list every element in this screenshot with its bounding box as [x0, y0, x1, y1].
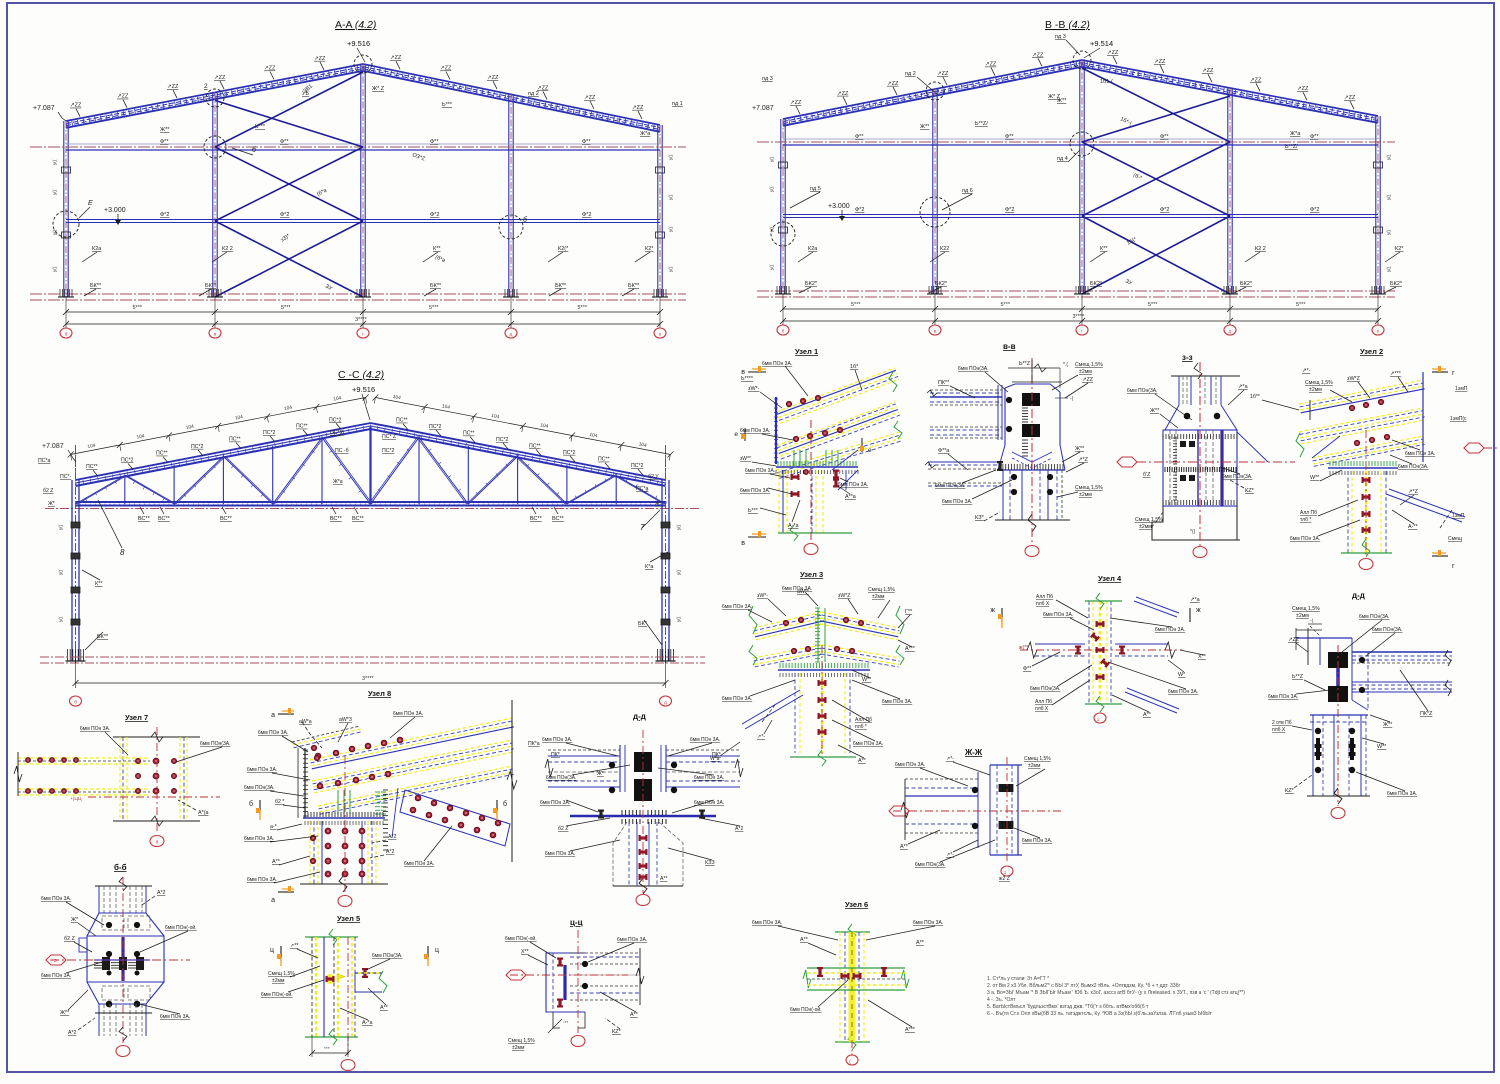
svg-text:↗***: ↗***	[1390, 371, 1402, 377]
svg-text:1б1-(: 1б1-(	[1100, 79, 1113, 85]
svg-text:тлб *: тлб *	[1300, 517, 1311, 523]
svg-text:+7.087: +7.087	[752, 105, 774, 112]
svg-text:ПС -б: ПС -б	[335, 448, 349, 454]
svg-text:д: д	[510, 332, 513, 337]
svg-text:4 -. Зъ. *Олт: 4 -. Зъ. *Олт	[987, 997, 1016, 1003]
svg-text:А*(а: А*(а	[198, 810, 209, 816]
svg-text:Ф*2: Ф*2	[855, 207, 864, 213]
svg-text:пд 2: пд 2	[528, 91, 539, 97]
svg-text:Ж*: Ж*	[597, 771, 604, 777]
svg-text:А-*а: А-*а	[362, 1020, 373, 1026]
svg-text:6мм ПОн(3А.: 6мм ПОн(3А.	[244, 785, 274, 791]
svg-text:А**: А**	[630, 1012, 639, 1018]
svg-text:3****: 3****	[1073, 314, 1085, 320]
svg-text:6мм ПОн 3А.: 6мм ПОн 3А.	[1168, 689, 1198, 695]
svg-text:ВС**: ВС**	[158, 516, 171, 522]
svg-text:Узел 1: Узел 1	[795, 347, 818, 356]
svg-text:з-з: з-з	[1182, 353, 1193, 362]
svg-text:Смещ: Смещ	[1448, 536, 1462, 542]
svg-text:А-**: А-**	[1408, 524, 1418, 530]
svg-text:2. от Вм 2 х3 Убл. Вбльм2'* с: 2. от Вм 2 х3 Убл. Вбльм2'* с БЫ 3* лтУ,…	[987, 983, 1180, 989]
svg-text:+7.087: +7.087	[33, 105, 55, 112]
svg-text:Узел 5: Узел 5	[337, 914, 360, 923]
svg-text:±2мм: ±2мм	[1079, 492, 1092, 498]
svg-text:БК2*: БК2*	[1090, 281, 1103, 287]
svg-text:В -В (4.2): В -В (4.2)	[1045, 19, 1090, 31]
svg-text:у((: у((	[52, 159, 57, 165]
svg-text:6мм ПОн 3А.: 6мм ПОн 3А.	[545, 851, 575, 857]
svg-text:г: г	[1452, 370, 1455, 377]
svg-text:ж2 Z: ж2 Z	[999, 876, 1010, 882]
svg-text:д: д	[664, 700, 667, 705]
svg-text:КZ*: КZ*	[1245, 488, 1255, 494]
svg-text:5***: 5***	[429, 305, 439, 311]
svg-text:*.(: *.(	[1063, 362, 1068, 368]
svg-text:у((: у((	[769, 156, 774, 162]
svg-text:↗*-: ↗*-	[946, 756, 954, 762]
svg-text:А**: А**	[916, 940, 925, 946]
svg-text:↗ZZ: ↗ZZ	[584, 95, 596, 101]
svg-text:1б**: 1б**	[1250, 394, 1260, 400]
svg-text:6мм ПОн(-ой.: 6мм ПОн(-ой.	[165, 924, 197, 931]
svg-text:ПС**: ПС**	[229, 437, 241, 443]
svg-text:ВС**: ВС**	[220, 516, 233, 522]
svg-text:6мм ПОн 3А.: 6мм ПОн 3А.	[160, 1014, 190, 1020]
svg-text:а: а	[271, 897, 275, 904]
svg-text:↗*-: ↗*-	[1302, 368, 1311, 374]
svg-text:Ф**: Ф**	[430, 139, 439, 145]
svg-text:6мм ПОн 3А.: 6мм ПОн 3А.	[694, 775, 724, 781]
svg-text:±2мм: ±2мм	[872, 594, 885, 600]
svg-text:Ж**: Ж**	[1383, 722, 1393, 728]
svg-text:Алл Пб: Алл Пб	[1300, 510, 1317, 516]
svg-text:А**: А**	[660, 876, 668, 882]
svg-text:ПС**: ПС**	[156, 451, 168, 457]
svg-text:6мм ПОн 3А.: 6мм ПОн 3А.	[1155, 627, 1185, 633]
svg-text:Ф*2: Ф*2	[430, 212, 439, 218]
svg-text:у((: у((	[769, 226, 774, 232]
svg-text:±2мм: ±2мм	[1139, 524, 1152, 530]
svg-text:±2мм: ±2мм	[272, 978, 285, 984]
svg-text:Г**: Г**	[905, 609, 913, 615]
svg-text:2 отв Пб: 2 отв Пб	[1272, 720, 1292, 726]
svg-text:Ж*а: Ж*а	[333, 479, 343, 485]
svg-text:А*2: А*2	[388, 834, 396, 840]
svg-text:↗ZZ: ↗ZZ	[1250, 77, 1262, 83]
svg-text:1б*: 1б*	[850, 364, 859, 370]
svg-text:6мм ПОн(3А.: 6мм ПОн(3А.	[200, 741, 230, 747]
svg-text:Ф**: Ф**	[280, 139, 289, 145]
svg-text:*((: *((	[1190, 529, 1196, 535]
svg-text:зW**: зW**	[740, 456, 751, 462]
svg-text:6мм ПОн 3А.: 6мм ПОн 3А.	[740, 428, 770, 434]
svg-text:+3.000: +3.000	[828, 203, 850, 210]
svg-text:6мм ПОн 3А.: 6мм ПОн 3А.	[542, 737, 572, 743]
svg-text:6мм ПОн 3А.: 6мм ПОн 3А.	[247, 767, 277, 773]
svg-text:3****: 3****	[362, 676, 374, 682]
svg-text:пд 3: пд 3	[1055, 34, 1066, 40]
svg-text:А*2: А*2	[68, 1030, 76, 1036]
svg-text:6мм ПОн 3А.: 6мм ПОн 3А.	[853, 741, 883, 747]
svg-text:6мм ПОн 3А.: 6мм ПОн 3А.	[942, 499, 972, 505]
svg-text:К22: К22	[940, 246, 949, 252]
svg-text:у((: у((	[769, 264, 774, 270]
svg-text:б2 Z: б2 Z	[558, 826, 568, 832]
svg-text:К**: К**	[433, 246, 441, 252]
svg-text:ж: ж	[1196, 607, 1201, 614]
svg-text:Ж**: Ж**	[160, 127, 170, 133]
svg-text:Ж**: Ж**	[1075, 446, 1085, 452]
svg-text:5***: 5***	[851, 302, 861, 308]
svg-text:аW**: аW**	[797, 589, 809, 595]
svg-text:ПС* Z: ПС* Z	[382, 434, 396, 440]
svg-text:ц: ц	[435, 947, 439, 954]
svg-text:6мм ПОн 3А.: 6мм ПОн 3А.	[1387, 791, 1417, 797]
svg-text:Ф**: Ф**	[855, 134, 864, 140]
svg-text:ПС*2: ПС*2	[631, 463, 643, 469]
svg-text:W*: W*	[1178, 672, 1186, 678]
svg-text:у((: у((	[676, 616, 681, 622]
svg-text:ПС*-: ПС*-	[60, 474, 71, 480]
svg-text:пд 4: пд 4	[1057, 156, 1068, 162]
svg-text:Смещ 1,5%: Смещ 1,5%	[268, 971, 295, 977]
svg-text:↗ZZ: ↗ZZ	[314, 56, 326, 62]
svg-text:З: З	[54, 958, 57, 963]
svg-text:ВС**: ВС**	[530, 516, 543, 522]
svg-text:W**: W**	[1377, 744, 1387, 750]
svg-text:БК**: БК**	[90, 283, 102, 289]
svg-text:Узел 4: Узел 4	[1098, 574, 1122, 583]
svg-text:Узел 7: Узел 7	[125, 713, 148, 722]
svg-text:↗ZZ: ↗ZZ	[1202, 68, 1214, 74]
svg-text:6мм ПОн(3А.: 6мм ПОн(3А.	[1222, 474, 1252, 480]
svg-text:б2 У: б2 У	[648, 474, 659, 480]
svg-text:б: б	[782, 329, 785, 334]
svg-text:плб Х: плб Х	[1035, 706, 1049, 712]
svg-text:у((: у((	[58, 616, 63, 622]
svg-text:Ь**Z: Ь**Z	[1292, 674, 1304, 680]
svg-text:б: б	[503, 800, 507, 808]
svg-text:6мм ПОн 3А.: 6мм ПОн 3А.	[1290, 536, 1320, 542]
svg-text:6мм ПОн 3А.: 6мм ПОн 3А.	[244, 836, 274, 842]
svg-text:б: б	[65, 332, 68, 337]
svg-text:5***: 5***	[1001, 302, 1011, 308]
svg-text:плб Х: плб Х	[1036, 601, 1050, 607]
svg-text:А**: А**	[1143, 712, 1152, 718]
svg-text:Ж*а: Ж*а	[640, 131, 651, 137]
svg-text:аW*а: аW*а	[299, 719, 312, 725]
svg-text:1эмП: 1эмП	[1455, 386, 1468, 392]
svg-text:ВС**: ВС**	[552, 516, 565, 522]
svg-text:Ь***: Ь***	[748, 508, 759, 514]
svg-text:↗*а: ↗*а	[1238, 384, 1248, 390]
svg-text:Смещ 1,5%: Смещ 1,5%	[508, 1038, 535, 1044]
svg-text:зW*-: зW*-	[748, 386, 760, 392]
svg-text:Смещ 1,5%: Смещ 1,5%	[1075, 485, 1103, 491]
svg-text:зW*Z: зW*Z	[838, 593, 850, 599]
svg-text:Ж* Z: Ж* Z	[372, 86, 385, 92]
svg-text:Ф**: Ф**	[1310, 134, 1319, 140]
svg-text:+3.000: +3.000	[104, 207, 126, 214]
svg-text:6мм ПОн 3А.: 6мм ПОн 3А.	[1022, 838, 1052, 844]
svg-text:6мм ПОн(-ой.: 6мм ПОн(-ой.	[261, 991, 293, 998]
svg-text:К2а: К2а	[92, 246, 102, 252]
svg-text:Ф*2: Ф*2	[1005, 207, 1014, 213]
svg-text:±2мм: ±2мм	[1028, 763, 1041, 769]
svg-text:пд 5: пд 5	[810, 186, 821, 192]
svg-text:6мм ПОн 3А.: 6мм ПОн 3А.	[540, 800, 570, 806]
svg-text:↗ZZ: ↗ZZ	[264, 66, 276, 72]
svg-text:5***: 5***	[281, 305, 291, 311]
svg-text:КЗ*: КЗ*	[975, 515, 985, 521]
svg-text:↗ZZ: ↗ZZ	[440, 66, 452, 72]
svg-text:Ь**Z/: Ь**Z/	[975, 121, 988, 127]
svg-text:КЗЗ: КЗЗ	[705, 860, 715, 866]
svg-text:Ф**: Ф**	[160, 139, 169, 145]
svg-text:8: 8	[120, 548, 125, 557]
svg-text:↗ZZ: ↗ZZ	[790, 100, 802, 106]
svg-text:5***: 5***	[133, 305, 143, 311]
svg-text:ПС*2: ПС*2	[496, 437, 508, 443]
svg-text:↗ZZ: ↗ZZ	[1082, 377, 1094, 383]
svg-text:5***: 5***	[578, 305, 588, 311]
svg-text:↗ZZ: ↗ZZ	[1297, 86, 1309, 92]
svg-text:К2 2: К2 2	[1255, 246, 1266, 252]
svg-text:К*а: К*а	[645, 564, 654, 570]
svg-text:Ь**Z/: Ь**Z/	[1285, 144, 1298, 150]
svg-text:ПС*а: ПС*а	[38, 458, 50, 464]
svg-text:6мм ПОн 3А.: 6мм ПОн 3А.	[895, 762, 925, 768]
svg-text:Ж*а: Ж*а	[1290, 131, 1301, 137]
svg-text:ц: ц	[270, 947, 274, 954]
svg-text:БК*: БК*	[638, 621, 648, 627]
svg-text:К2*: К2*	[645, 246, 654, 252]
svg-text:Е: Е	[88, 200, 93, 207]
svg-text:ПК*: ПК*	[551, 752, 560, 758]
svg-text:↗ZZ: ↗ZZ	[1107, 50, 1119, 56]
svg-text:зW*-: зW*-	[757, 593, 768, 599]
svg-text:***: ***	[324, 1046, 330, 1052]
svg-text:у((: у((	[52, 266, 57, 272]
svg-text:в: в	[741, 540, 745, 547]
svg-text:К2(*: К2(*	[558, 246, 569, 252]
svg-text:Смещ 1,5%: Смещ 1,5%	[1292, 606, 1320, 612]
svg-text:б'Z: б'Z	[1143, 472, 1151, 478]
svg-text:Ф*2: Ф*2	[582, 212, 591, 218]
svg-text:±2мм: ±2мм	[1309, 387, 1322, 393]
svg-text:д: д	[1229, 329, 1232, 334]
svg-text:ц-ц: ц-ц	[570, 918, 583, 927]
svg-text:6мм ПОн(-ой.: 6мм ПОн(-ой.	[790, 1006, 822, 1013]
svg-text:ПС**: ПС**	[463, 431, 475, 437]
svg-text:у((: у((	[668, 194, 673, 200]
svg-text:6мм ПОн 3А.: 6мм ПОн 3А.	[393, 711, 423, 717]
svg-text:6мм ПОн 3А.: 6мм ПОн 3А.	[1268, 694, 1298, 700]
svg-text:Ф**а: Ф**а	[938, 448, 949, 454]
svg-text:б: б	[249, 800, 253, 808]
svg-text:Узел 8: Узел 8	[368, 689, 391, 698]
svg-text:6мм ПОн 3А.: 6мм ПОн 3А.	[745, 468, 775, 474]
svg-text:Ь***: Ь***	[255, 124, 266, 130]
svg-text:А**: А**	[380, 1005, 389, 1011]
svg-text:Алл Пб: Алл Пб	[1036, 594, 1053, 600]
svg-text:Ь**Z: Ь**Z	[1019, 361, 1031, 367]
svg-text:Ф*2: Ф*2	[280, 212, 289, 218]
svg-text:↗*а: ↗*а	[1190, 597, 1200, 603]
svg-text:а: а	[271, 712, 275, 719]
svg-text:д-д: д-д	[1352, 591, 1365, 600]
svg-text:↗**: ↗**	[290, 943, 298, 949]
svg-text:6мм ПОн(3А.: 6мм ПОн(3А.	[1127, 388, 1157, 394]
svg-text:пд 2: пд 2	[905, 71, 916, 77]
svg-text:1. Ст*ль у стали: 3т А=ГТ *: 1. Ст*ль у стали: 3т А=ГТ *	[987, 976, 1049, 982]
svg-text:ПС*2: ПС*2	[191, 444, 203, 450]
svg-text:Узел 3: Узел 3	[800, 570, 823, 579]
svg-text:+(ЦЦ: +(ЦЦ	[70, 796, 82, 802]
svg-text:у((: у((	[668, 226, 673, 232]
svg-text:пд 6: пд 6	[962, 188, 973, 194]
svg-text:ПК**: ПК**	[938, 380, 950, 386]
svg-text:↗ZZ: ↗ZZ	[537, 85, 549, 91]
svg-text:+9.514: +9.514	[1090, 39, 1113, 48]
svg-text:Алл Пб: Алл Пб	[1035, 699, 1052, 705]
svg-text:б: б	[74, 700, 77, 705]
svg-text:↗*Z: ↗*Z	[1408, 489, 1419, 495]
svg-text:6мм ПОн(3А.: 6мм ПОн(3А.	[1398, 464, 1428, 470]
svg-text:6мм ПОн 3А.: 6мм ПОн 3А.	[80, 726, 110, 732]
svg-text:ПС**: ПС**	[86, 464, 98, 470]
svg-text:у((: у((	[1386, 194, 1391, 200]
svg-text:А***: А***	[905, 1027, 916, 1033]
svg-text:зW*Z: зW*Z	[1347, 376, 1361, 382]
svg-text:6мм ПОн 3А.: 6мм ПОн 3А.	[722, 696, 752, 702]
svg-text:6 -. Въ(тя Ст.х Олл хВы(бВ 33: 6 -. Въ(тя Ст.х Олл хВы(бВ 33 ль. татздж…	[987, 1011, 1213, 1017]
svg-text:ПС*2: ПС*2	[429, 424, 441, 430]
svg-text:БК**: БК**	[628, 283, 640, 289]
svg-text:БК2*: БК2*	[1390, 281, 1403, 287]
svg-text:ПС**: ПС**	[598, 457, 610, 463]
svg-text:-**: -**	[563, 1020, 568, 1026]
svg-text:5***: 5***	[1148, 302, 1158, 308]
svg-text:6мм ПОн(3А.: 6мм ПОн(3А.	[1359, 614, 1389, 620]
svg-text:↗ZZ: ↗ZZ	[937, 71, 949, 77]
svg-text:К**: К**	[95, 581, 103, 587]
svg-text:Ф*2: Ф*2	[1160, 207, 1169, 213]
svg-text:Ж**: Ж**	[60, 1010, 70, 1016]
svg-text:у((: у((	[58, 524, 63, 530]
svg-text:БК2*: БК2*	[1240, 281, 1253, 287]
svg-text:6мм ПОн(3А.: 6мм ПОн(3А.	[546, 775, 576, 781]
svg-text:у((: у((	[676, 524, 681, 530]
svg-text:6мм ПОн(3А.: 6мм ПОн(3А.	[1030, 686, 1060, 692]
svg-text:5***: 5***	[1296, 302, 1306, 308]
svg-text:↗ZZ: ↗ZZ	[117, 94, 129, 100]
svg-text:±2мм: ±2мм	[1079, 369, 1092, 375]
svg-text:ПС*2: ПС*2	[563, 450, 575, 456]
svg-text:у((: у((	[52, 229, 57, 235]
svg-text:А*2: А*2	[386, 849, 394, 855]
svg-text:↗*Z: ↗*Z	[1078, 457, 1089, 463]
svg-text:Ф**: Ф**	[1160, 134, 1169, 140]
svg-text:ж(**: ж(**	[1019, 645, 1028, 651]
svg-text:W**: W**	[1310, 475, 1320, 481]
svg-text:Ж**: Ж**	[1057, 98, 1067, 104]
svg-text:ПС*2: ПС*2	[263, 430, 275, 436]
svg-text:↗ZZ: ↗ZZ	[985, 62, 997, 68]
svg-text:↗ZZ: ↗ZZ	[1032, 52, 1044, 58]
svg-text:А***: А***	[905, 646, 916, 652]
svg-text:↗ZZ: ↗ZZ	[887, 81, 899, 87]
svg-text:у((: у((	[769, 186, 774, 192]
svg-text:6мм ПОн 3А.: 6мм ПОн 3А.	[247, 877, 277, 883]
svg-text:ПК*: ПК*	[712, 752, 721, 758]
svg-text:ПС*2: ПС*2	[382, 448, 394, 454]
svg-text:Ж*: Ж*	[655, 501, 662, 507]
svg-text:К2 2: К2 2	[222, 246, 233, 252]
svg-text:пд 1: пд 1	[672, 101, 683, 107]
svg-text:6мм ПОн 3А.: 6мм ПОн 3А.	[722, 604, 752, 610]
svg-text:ПС*а: ПС*а	[636, 486, 648, 492]
svg-text:6мм ПОн 3А.: 6мм ПОн 3А.	[882, 699, 912, 705]
svg-text:Ж*: Ж*	[71, 917, 79, 923]
svg-text:6мм ПОн 3А.: 6мм ПОн 3А.	[258, 730, 288, 736]
svg-text:ВС**: ВС**	[138, 516, 151, 522]
svg-text:2: 2	[204, 83, 208, 90]
svg-text:ПС*(б: ПС*(б	[330, 430, 344, 436]
svg-text:↗ZZ: ↗ZZ	[1288, 637, 1300, 643]
svg-text:Ф**: Ф**	[1023, 666, 1032, 672]
svg-text:1эмП: 1эмП	[1452, 513, 1465, 519]
svg-text:6мм ПОн 3А.: 6мм ПОн 3А.	[1405, 451, 1435, 457]
svg-text:Узел 2: Узел 2	[1360, 347, 1383, 356]
svg-text:6мм ПОн 3А.: 6мм ПОн 3А.	[404, 861, 434, 867]
svg-text:б2 Z: б2 Z	[64, 936, 76, 942]
svg-text:Смещ 1,5%: Смещ 1,5%	[1024, 756, 1051, 762]
svg-text:е: е	[868, 447, 872, 454]
svg-text:С -С (4.2): С -С (4.2)	[338, 369, 384, 381]
svg-text:д-д: д-д	[633, 712, 646, 721]
svg-text:ВС**: ВС**	[330, 516, 343, 522]
svg-text:ПС**: ПС**	[396, 418, 408, 424]
svg-text:W**: W**	[862, 677, 872, 683]
svg-text:↗ZZ: ↗ZZ	[837, 91, 849, 97]
svg-text:б2 *: б2 *	[275, 799, 284, 805]
svg-text:в: в	[741, 369, 745, 376]
svg-text:у((: у((	[1386, 229, 1391, 235]
svg-text:аW*З: аW*З	[339, 717, 352, 723]
svg-text:A-A (4.2): A-A (4.2)	[335, 19, 376, 31]
svg-text:БК**: БК**	[97, 634, 109, 640]
svg-text:К**: К**	[1100, 246, 1108, 252]
svg-text:ПК*а: ПК*а	[528, 741, 540, 747]
svg-text:А**а: А**а	[845, 494, 856, 500]
svg-text:г: г	[1452, 563, 1455, 570]
svg-text:3 а. Во=ЗЫ' Мъам '* В ЗЫГЫг Мъ: 3 а. Во=ЗЫ' Мъам '* В ЗЫГЫг Мъам ' Юб Ъ.…	[987, 990, 1245, 996]
svg-text:Ф*2: Ф*2	[1310, 207, 1319, 213]
svg-text:у((: у((	[676, 569, 681, 575]
svg-text:Смещ 1,5%: Смещ 1,5%	[1305, 380, 1333, 386]
svg-text:А*2: А*2	[157, 890, 165, 896]
svg-text:↗ZZ: ↗ZZ	[1154, 59, 1166, 65]
svg-text:Ж**: Ж**	[1150, 408, 1160, 414]
svg-text:↗ZZ: ↗ZZ	[214, 75, 226, 81]
svg-text:А**: А**	[858, 758, 867, 764]
svg-text:+9.516: +9.516	[352, 385, 375, 394]
svg-text:1эмП(с: 1эмП(с	[1450, 416, 1467, 422]
svg-text:Смещ 1,5%: Смещ 1,5%	[1135, 517, 1163, 523]
svg-text:6мм ПОн(-ой.: 6мм ПОн(-ой.	[505, 935, 537, 942]
svg-text:↗*-: ↗*-	[757, 734, 765, 740]
